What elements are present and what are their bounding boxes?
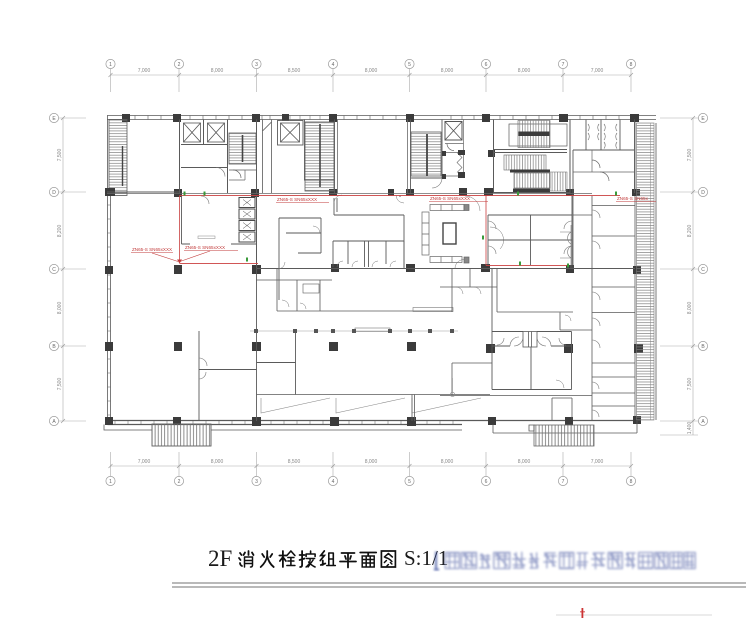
svg-text:8,000: 8,000 bbox=[518, 68, 531, 74]
svg-text:2F: 2F bbox=[208, 546, 232, 571]
svg-text:ZN65-S SN65xXXX: ZN65-S SN65xXXX bbox=[277, 197, 317, 202]
svg-text:8,200: 8,200 bbox=[687, 225, 693, 238]
svg-text:C: C bbox=[52, 267, 56, 273]
svg-text:7,500: 7,500 bbox=[57, 149, 63, 162]
svg-text:8: 8 bbox=[630, 479, 633, 485]
svg-text:8,500: 8,500 bbox=[288, 459, 301, 465]
svg-text:4: 4 bbox=[332, 62, 335, 68]
svg-text:S:1/1: S:1/1 bbox=[404, 546, 448, 570]
svg-text:8,000: 8,000 bbox=[365, 68, 378, 74]
svg-text:3: 3 bbox=[255, 479, 258, 485]
svg-text:ZN65-S SN65x: ZN65-S SN65x bbox=[617, 196, 649, 201]
svg-text:8,000: 8,000 bbox=[365, 459, 378, 465]
svg-text:ZN65-S SN65xXXX: ZN65-S SN65xXXX bbox=[430, 196, 470, 201]
svg-text:7,500: 7,500 bbox=[57, 378, 63, 391]
svg-text:2: 2 bbox=[178, 479, 181, 485]
svg-text:7,000: 7,000 bbox=[138, 68, 151, 74]
svg-text:8,000: 8,000 bbox=[518, 459, 531, 465]
svg-text:C: C bbox=[701, 267, 705, 273]
svg-text:ZN65-S SN65xXXX: ZN65-S SN65xXXX bbox=[185, 245, 225, 250]
svg-text:8,000: 8,000 bbox=[441, 68, 454, 74]
svg-text:8,000: 8,000 bbox=[211, 68, 224, 74]
svg-text:7,000: 7,000 bbox=[138, 459, 151, 465]
svg-text:1: 1 bbox=[109, 62, 112, 68]
svg-text:5: 5 bbox=[408, 479, 411, 485]
svg-text:6: 6 bbox=[485, 62, 488, 68]
svg-text:4: 4 bbox=[332, 479, 335, 485]
svg-text:8,000: 8,000 bbox=[57, 302, 63, 315]
svg-text:8,500: 8,500 bbox=[288, 68, 301, 74]
svg-text:7,000: 7,000 bbox=[591, 459, 604, 465]
svg-text:1,400: 1,400 bbox=[687, 422, 693, 435]
svg-text:2: 2 bbox=[178, 62, 181, 68]
svg-text:7,500: 7,500 bbox=[687, 149, 693, 162]
svg-text:8: 8 bbox=[630, 62, 633, 68]
svg-text:3: 3 bbox=[255, 62, 258, 68]
svg-text:6: 6 bbox=[485, 479, 488, 485]
svg-text:1: 1 bbox=[109, 479, 112, 485]
svg-text:D: D bbox=[52, 190, 56, 196]
svg-text:8,000: 8,000 bbox=[211, 459, 224, 465]
svg-text:D: D bbox=[701, 190, 705, 196]
svg-text:5: 5 bbox=[408, 62, 411, 68]
svg-text:8,200: 8,200 bbox=[57, 225, 63, 238]
svg-text:7: 7 bbox=[562, 479, 565, 485]
svg-text:ZN65-S SN65xXXX: ZN65-S SN65xXXX bbox=[132, 247, 172, 252]
svg-text:7,500: 7,500 bbox=[687, 378, 693, 391]
svg-text:7,000: 7,000 bbox=[591, 68, 604, 74]
svg-text:8,000: 8,000 bbox=[687, 302, 693, 315]
svg-text:7: 7 bbox=[562, 62, 565, 68]
svg-text:8,000: 8,000 bbox=[441, 459, 454, 465]
